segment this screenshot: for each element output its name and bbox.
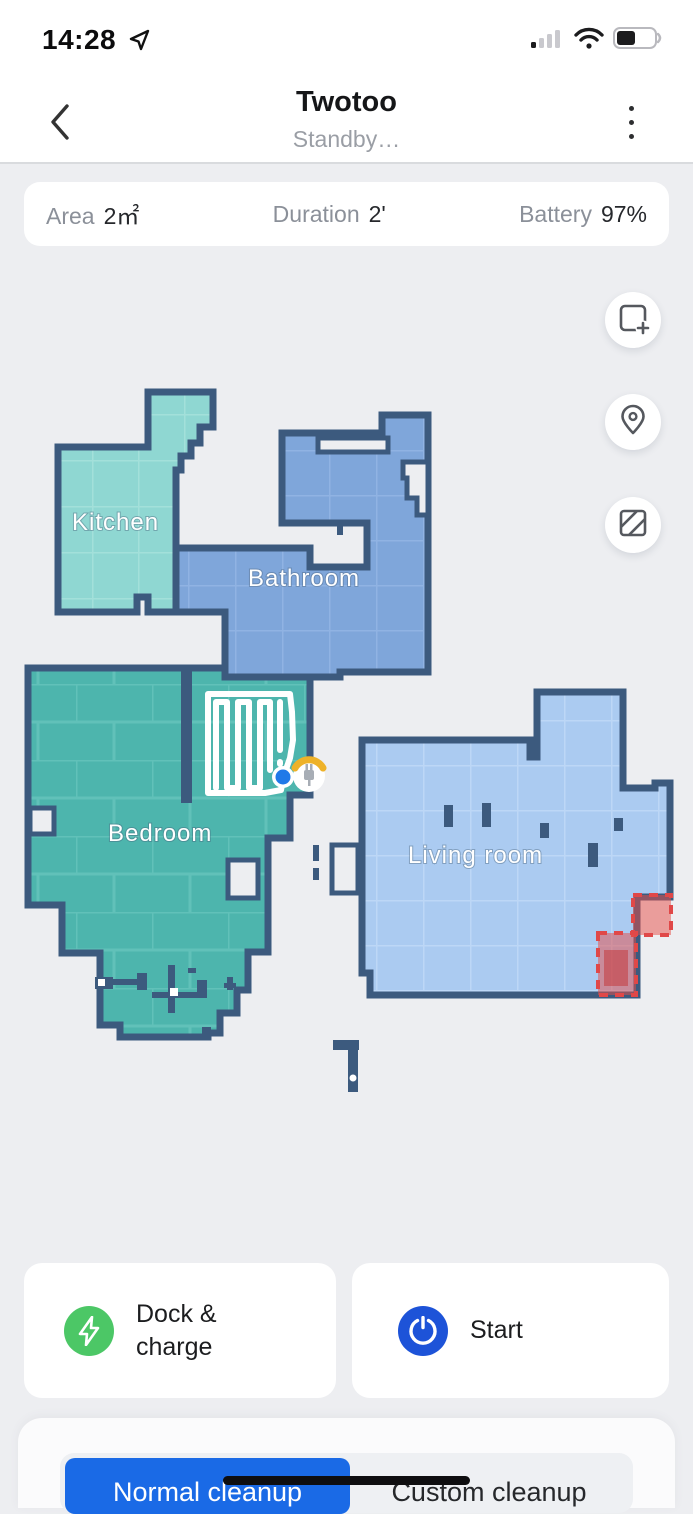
room-label-kitchen: Kitchen (72, 509, 159, 536)
device-status: Standby… (0, 126, 693, 153)
tab-normal-cleanup[interactable]: Normal cleanup (65, 1458, 350, 1514)
corridor-pocket (332, 845, 358, 893)
lightning-icon (64, 1306, 114, 1356)
robot-marker[interactable] (272, 766, 294, 788)
status-bar: 14:28 (0, 0, 693, 84)
stat-battery-label: Battery (519, 201, 592, 228)
start-label: Start (470, 1314, 600, 1347)
dock-marker (293, 760, 325, 792)
no-go-zone-core (604, 950, 628, 986)
wall-stub (181, 668, 192, 803)
home-indicator[interactable] (223, 1476, 470, 1485)
location-arrow-icon (126, 28, 152, 59)
device-title: Twotoo (0, 86, 693, 119)
dock-charge-label: Dock & charge (136, 1298, 266, 1363)
battery-icon (613, 26, 665, 55)
room-label-bedroom: Bedroom (108, 820, 212, 847)
clock: 14:28 (42, 24, 116, 56)
tab-custom-cleanup[interactable]: Custom cleanup (350, 1458, 628, 1514)
wifi-icon (574, 26, 604, 55)
stat-area: Area 2㎡ (46, 197, 139, 231)
no-go-zone-icon (616, 506, 650, 545)
stat-duration-label: Duration (273, 201, 360, 228)
bathroom-slot (318, 438, 388, 452)
wall-stub (337, 522, 343, 535)
stat-battery: Battery 97% (519, 201, 647, 228)
start-button[interactable]: Start (352, 1263, 669, 1398)
room-label-bathroom: Bathroom (248, 565, 360, 592)
no-go-zone[interactable] (633, 895, 671, 935)
bedroom-dot (98, 979, 105, 986)
power-icon (398, 1306, 448, 1356)
stat-battery-value: 97% (601, 201, 647, 228)
bedroom-notch (30, 808, 54, 834)
nav-header: Twotoo Standby… (0, 84, 693, 164)
add-map-button[interactable] (605, 292, 661, 348)
stats-card: Area 2㎡ Duration 2' Battery 97% (24, 182, 669, 246)
stat-duration: Duration 2' (273, 201, 386, 228)
signal-icon (529, 26, 565, 55)
stat-area-value: 2㎡ (104, 197, 140, 231)
dock-charge-button[interactable]: Dock & charge (24, 1263, 336, 1398)
no-go-zone-button[interactable] (605, 497, 661, 553)
map-dot (350, 1075, 357, 1082)
stat-duration-value: 2' (369, 201, 386, 228)
bottom-sheet[interactable]: Normal cleanup Custom cleanup (18, 1418, 675, 1508)
pin-icon (616, 403, 650, 442)
bedroom-notch (228, 860, 258, 898)
bedroom-dot (170, 988, 178, 996)
pin-button[interactable] (605, 394, 661, 450)
more-menu-button[interactable] (611, 98, 651, 146)
add-map-icon (616, 301, 650, 340)
stat-area-label: Area (46, 203, 95, 230)
room-label-living: Living room (408, 842, 543, 869)
